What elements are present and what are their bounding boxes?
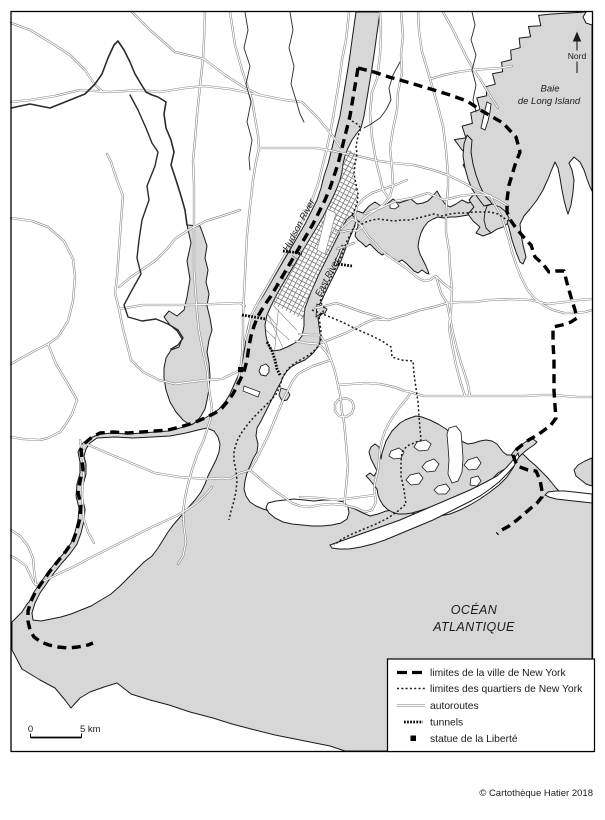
svg-text:ATLANTIQUE: ATLANTIQUE [432, 620, 515, 634]
svg-text:0: 0 [28, 724, 33, 735]
svg-text:autoroutes: autoroutes [430, 701, 479, 712]
svg-text:Baie: Baie [540, 84, 559, 95]
svg-text:5 km: 5 km [80, 724, 101, 735]
svg-text:OCÉAN: OCÉAN [451, 602, 498, 617]
svg-text:limites de la ville de New Yor: limites de la ville de New York [430, 668, 566, 679]
svg-text:limites des quartiers de New Y: limites des quartiers de New York [430, 684, 583, 695]
svg-text:Nord: Nord [568, 51, 587, 61]
svg-text:tunnels: tunnels [430, 718, 463, 729]
svg-text:© Cartothèque Hatier 2018: © Cartothèque Hatier 2018 [479, 788, 593, 799]
svg-text:de Long Island: de Long Island [518, 96, 581, 107]
svg-text:statue de la Liberté: statue de la Liberté [430, 734, 518, 745]
